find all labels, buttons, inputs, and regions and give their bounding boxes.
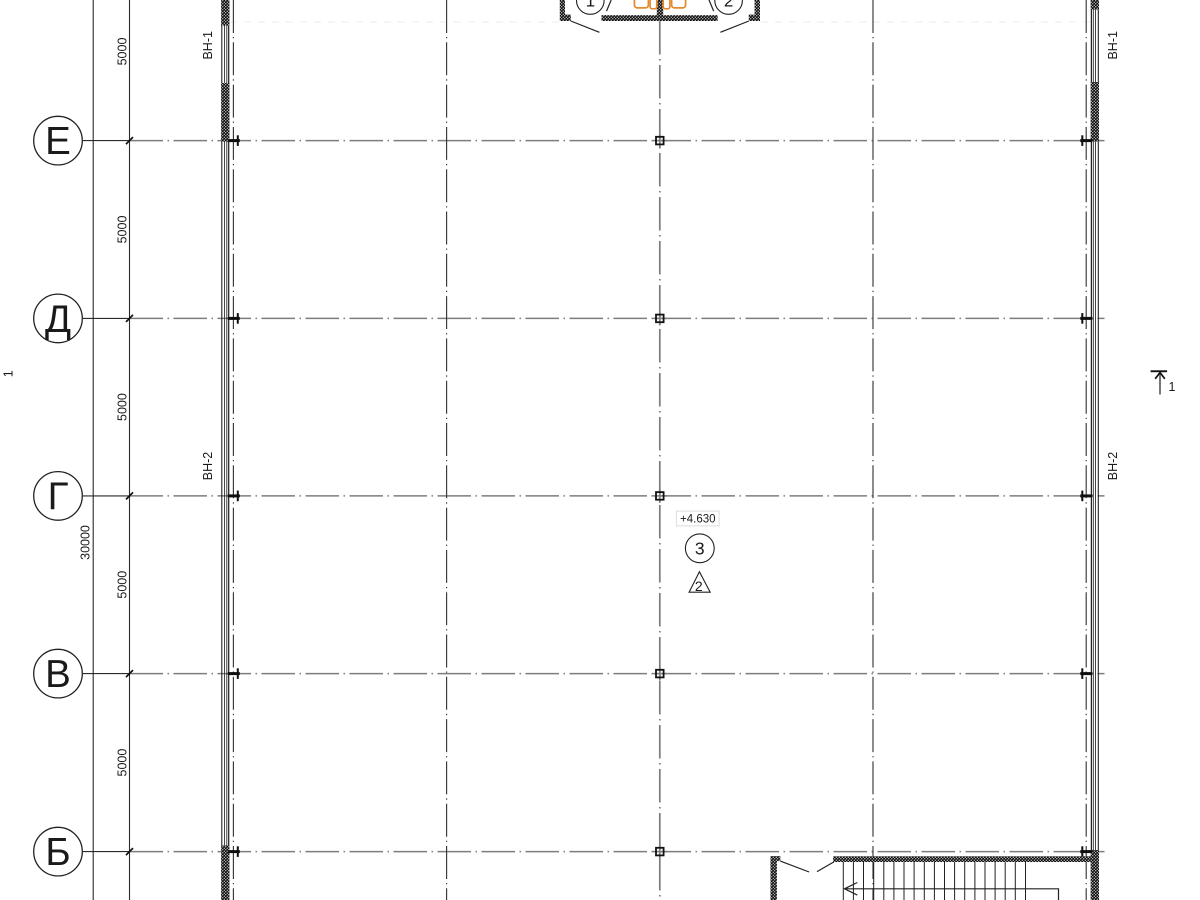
svg-text:Г: Г xyxy=(48,475,69,518)
svg-text:5000: 5000 xyxy=(116,393,130,421)
svg-text:5000: 5000 xyxy=(116,38,130,66)
svg-text:5000: 5000 xyxy=(116,216,130,244)
svg-text:30000: 30000 xyxy=(79,525,93,560)
svg-text:В: В xyxy=(45,653,71,696)
svg-text:ВН-1: ВН-1 xyxy=(1106,31,1120,60)
svg-text:2: 2 xyxy=(695,578,703,594)
svg-text:Д: Д xyxy=(45,298,71,341)
svg-text:5000: 5000 xyxy=(116,571,130,599)
svg-text:ВН-2: ВН-2 xyxy=(201,452,215,481)
svg-text:1: 1 xyxy=(586,0,595,11)
svg-text:Е: Е xyxy=(45,120,71,163)
svg-text:1: 1 xyxy=(1169,380,1176,394)
svg-text:Б: Б xyxy=(45,831,70,874)
svg-text:+4.630: +4.630 xyxy=(680,514,716,526)
svg-text:ВН-2: ВН-2 xyxy=(1106,452,1120,481)
svg-text:ВН-1: ВН-1 xyxy=(201,31,215,60)
svg-text:1: 1 xyxy=(2,370,16,377)
svg-text:3: 3 xyxy=(695,539,705,559)
svg-text:5000: 5000 xyxy=(116,749,130,777)
svg-text:2: 2 xyxy=(724,0,733,11)
